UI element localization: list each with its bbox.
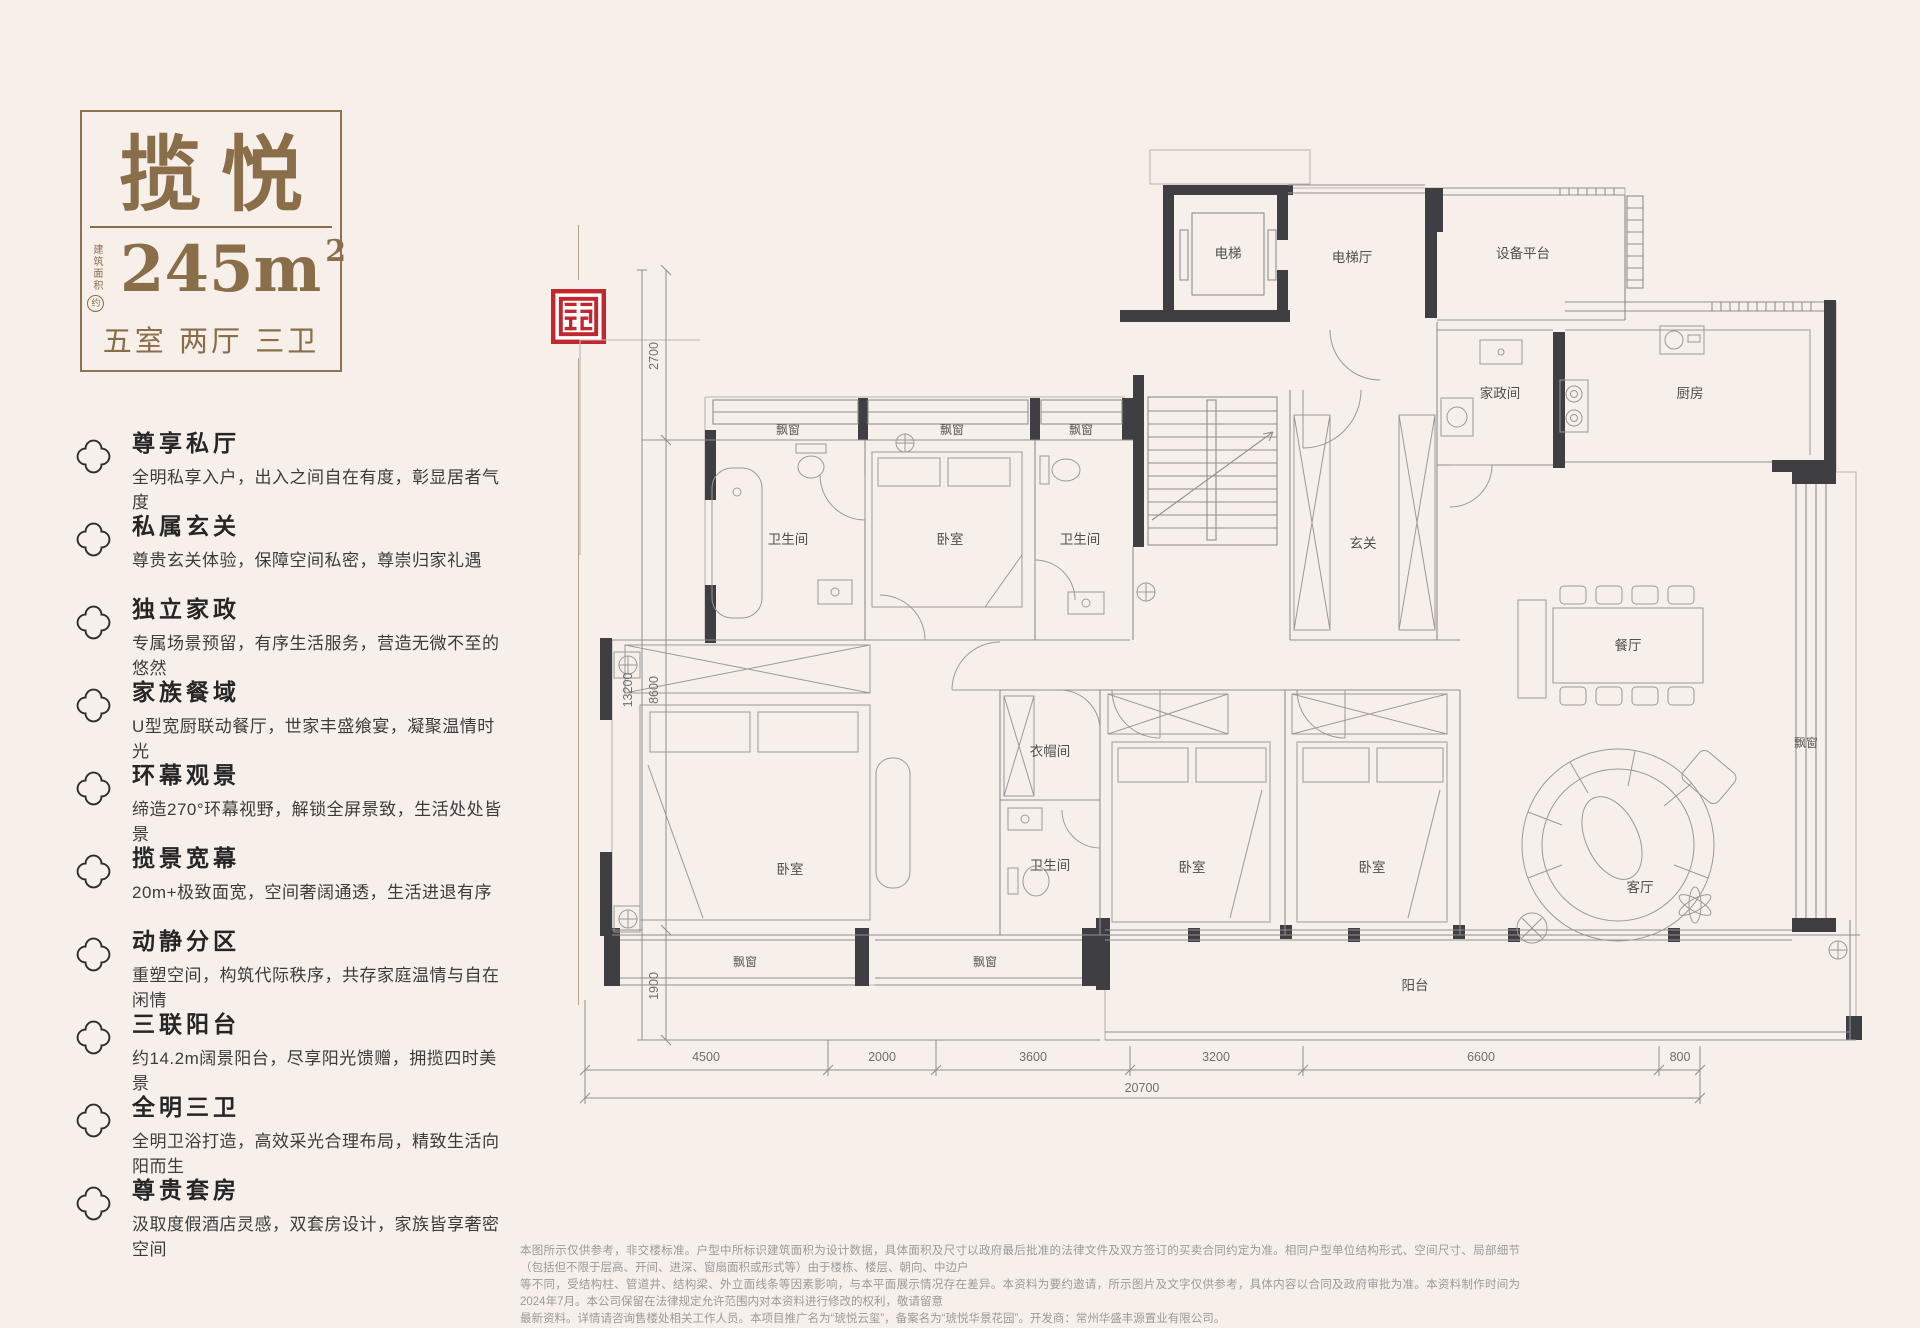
dim-left-segment: 1900 [647,972,661,1000]
plan-outline [580,150,1856,1040]
room-label-elevator: 电梯 [1215,246,1242,261]
dim-left-total: 13200 [621,673,635,708]
room-label-bedroom: 卧室 [777,861,804,877]
disclaimer: 本图所示仅供参考，非交楼标准。户型中所标识建筑面积为设计数据，具体面积及尺寸以政… [520,1243,1520,1328]
room-label-bay-window: 飘窗 [973,955,997,969]
disclaimer-line: 等不同，受结构柱、管道井、结构梁、外立面线条等因素影响，与本平面展示情况存在差异… [520,1277,1520,1311]
dim-bottom-segment: 4500 [692,1050,720,1064]
dim-left-segment: 2700 [647,342,661,370]
room-label-bay-window: 飘窗 [776,423,800,437]
room-label-living: 客厅 [1627,879,1654,895]
floor-plan: 电梯 电梯厅 设备平台 家政间 厨房 玄关 餐厅 客厅 阳台 衣帽间 卧室 卧室… [0,0,1920,1319]
room-label-bedroom: 卧室 [1179,859,1206,875]
dim-bottom-segment: 800 [1670,1050,1691,1064]
room-label-bathroom: 卫生间 [768,532,809,547]
room-label-equipment-platform: 设备平台 [1496,245,1550,261]
room-label-bedroom: 卧室 [1359,859,1386,875]
plan-room-labels: 电梯 电梯厅 设备平台 家政间 厨房 玄关 餐厅 客厅 阳台 衣帽间 卧室 卧室… [733,245,1818,993]
room-label-elevator-hall: 电梯厅 [1332,250,1373,265]
dim-bottom-segment: 6600 [1467,1050,1495,1064]
room-label-bedroom: 卧室 [937,531,964,547]
dim-bottom-total: 20700 [1125,1081,1160,1095]
dim-left-segment: 8600 [647,676,661,704]
room-label-bay-window: 飘窗 [1069,423,1093,437]
disclaimer-line: 最新资料。详情请咨询售楼处相关工作人员。本项目推广名为“琥悦云玺”，备案名为“琥… [520,1311,1520,1328]
room-label-bathroom: 卫生间 [1030,858,1071,873]
dim-bottom-segment: 3200 [1202,1050,1230,1064]
dim-bottom-segment: 2000 [868,1050,896,1064]
room-label-foyer: 玄关 [1350,535,1377,551]
room-label-balcony: 阳台 [1402,978,1429,993]
dim-bottom-segment: 3600 [1019,1050,1047,1064]
room-label-dining: 餐厅 [1615,638,1642,653]
room-label-bay-window: 飘窗 [1794,736,1818,750]
room-label-bay-window: 飘窗 [733,955,757,969]
room-label-bathroom: 卫生间 [1060,532,1101,547]
plan-doors [820,330,1492,848]
disclaimer-line: 本图所示仅供参考，非交楼标准。户型中所标识建筑面积为设计数据，具体面积及尺寸以政… [520,1243,1520,1277]
room-label-kitchen: 厨房 [1677,386,1704,401]
room-label-cloakroom: 衣帽间 [1030,744,1071,759]
room-label-bay-window: 飘窗 [940,423,964,437]
plan-walls [600,185,1862,1040]
room-label-housekeeping: 家政间 [1480,385,1521,401]
